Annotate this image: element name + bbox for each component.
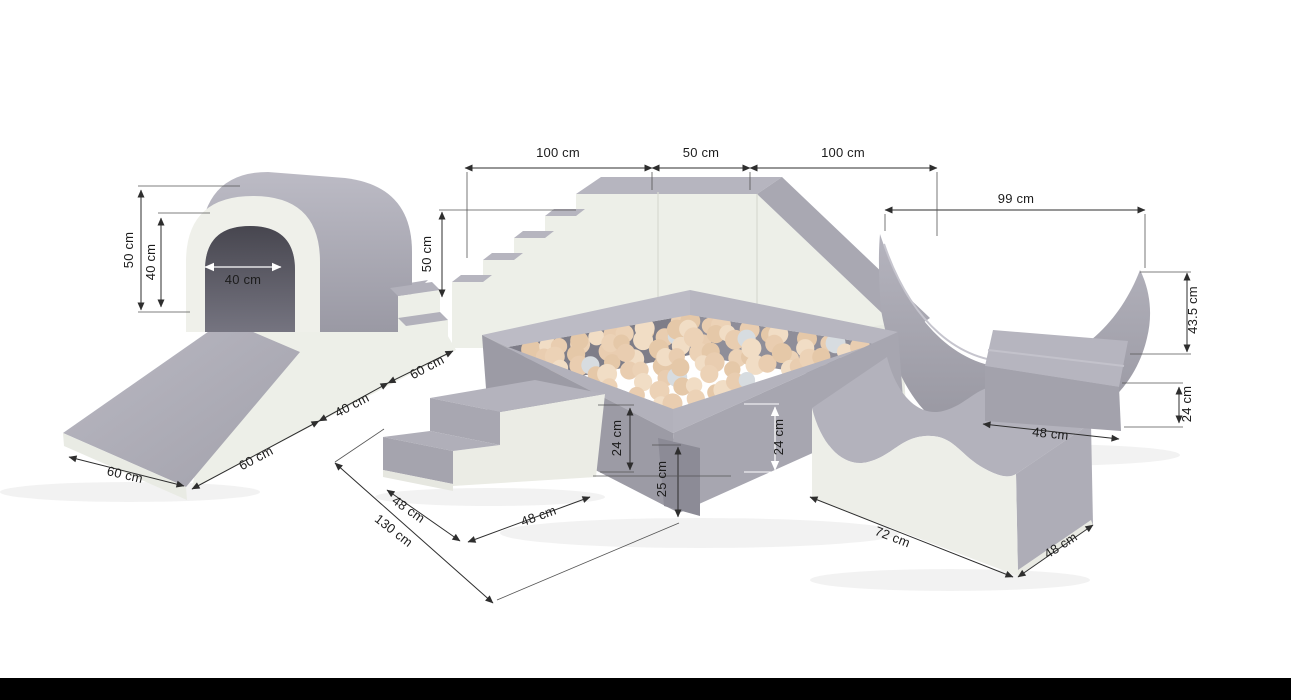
ball (671, 358, 689, 376)
ball (741, 338, 761, 358)
dim-label-rocker-width: 99 cm (998, 191, 1034, 206)
platform-top (576, 177, 782, 194)
dim-label-top-slide: 100 cm (821, 145, 865, 160)
dim-label-pit-outer: 25 cm (654, 461, 669, 497)
module-mini-stairs (383, 380, 605, 491)
footer-bar (0, 678, 1291, 700)
dim-label-tunnel-outer: 50 cm (121, 232, 136, 268)
diagram-canvas: 100 cm 50 cm 100 cm 99 cm 50 cm 40 cm 40… (0, 0, 1291, 700)
dim-label-tunnel-opening: 40 cm (225, 272, 261, 287)
dim-label-tunnel-inner: 40 cm (143, 244, 158, 280)
dim-label-wedge-height: 24 cm (1179, 386, 1194, 422)
module-wedge-block (985, 330, 1128, 431)
dim-label-pit-left: 24 cm (609, 420, 624, 456)
ball (700, 365, 718, 383)
dim-label-top-platform: 50 cm (683, 145, 719, 160)
dim-label-top-stairs: 100 cm (536, 145, 580, 160)
dim-label-pit-right: 24 cm (771, 419, 786, 455)
dim-label-rocker-height: 43.5 cm (1185, 286, 1200, 334)
ball (617, 344, 635, 362)
dim-label-stairs-height: 50 cm (419, 236, 434, 272)
product-dimension-diagram: 100 cm 50 cm 100 cm 99 cm 50 cm 40 cm 40… (0, 0, 1291, 700)
